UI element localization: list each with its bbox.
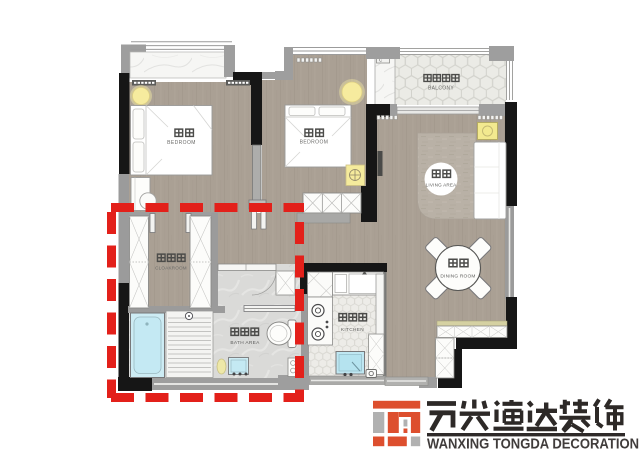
svg-text:LIVING AREA: LIVING AREA	[426, 183, 458, 188]
svg-text:BALCONY: BALCONY	[428, 86, 454, 92]
svg-text:BEDROOM: BEDROOM	[167, 140, 196, 146]
svg-text:CLOAKROOM: CLOAKROOM	[155, 266, 187, 271]
svg-text:BEDROOM: BEDROOM	[300, 140, 329, 146]
svg-text:BATH AREA: BATH AREA	[230, 340, 260, 346]
svg-text:WANXING TONGDA DECORATION: WANXING TONGDA DECORATION	[427, 436, 639, 453]
svg-text:KITCHEN: KITCHEN	[341, 327, 364, 333]
svg-text:DINING ROOM: DINING ROOM	[440, 274, 475, 280]
